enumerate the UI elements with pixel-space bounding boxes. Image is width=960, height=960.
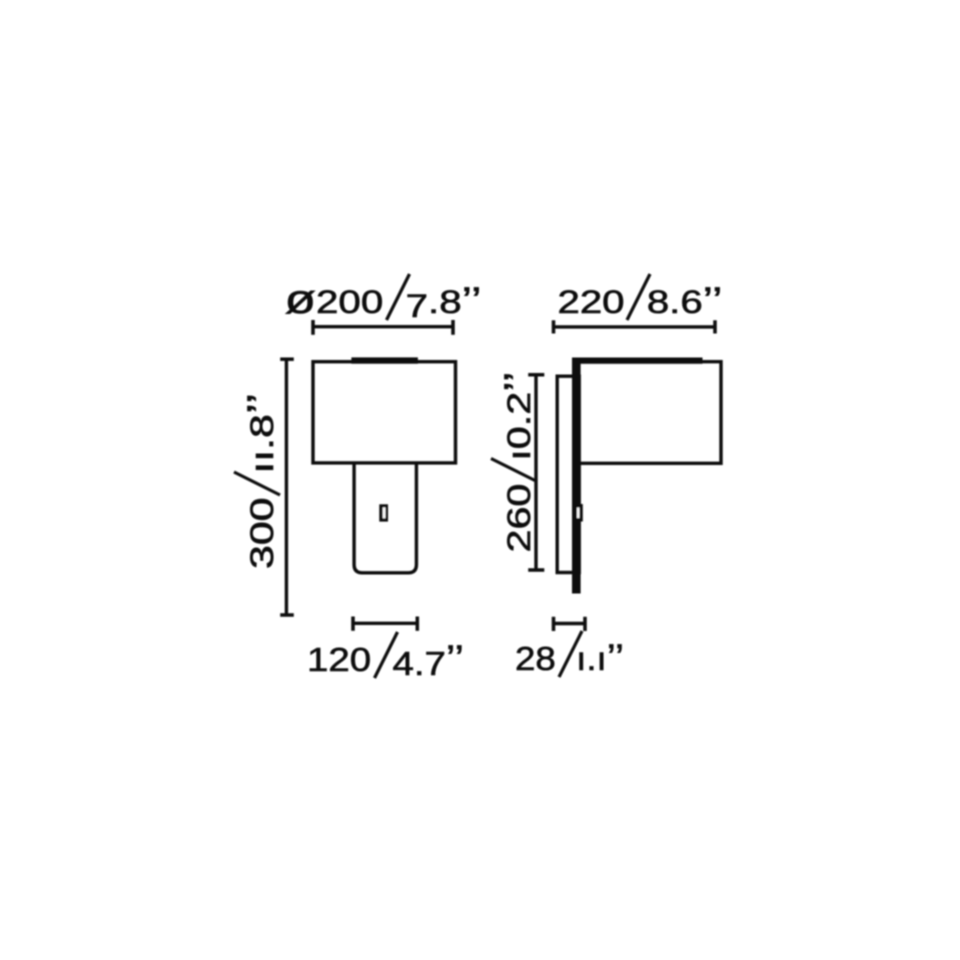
svg-text:300 ıı.8’’: 300 ıı.8’’ [240, 393, 281, 569]
svg-text:220 8.6’’: 220 8.6’’ [558, 280, 723, 321]
svg-text:260 ı0.2’’: 260 ı0.2’’ [497, 372, 538, 553]
svg-text:ø200 7.8’’: ø200 7.8’’ [285, 276, 482, 324]
svg-text:120 4.7’’: 120 4.7’’ [307, 638, 464, 683]
